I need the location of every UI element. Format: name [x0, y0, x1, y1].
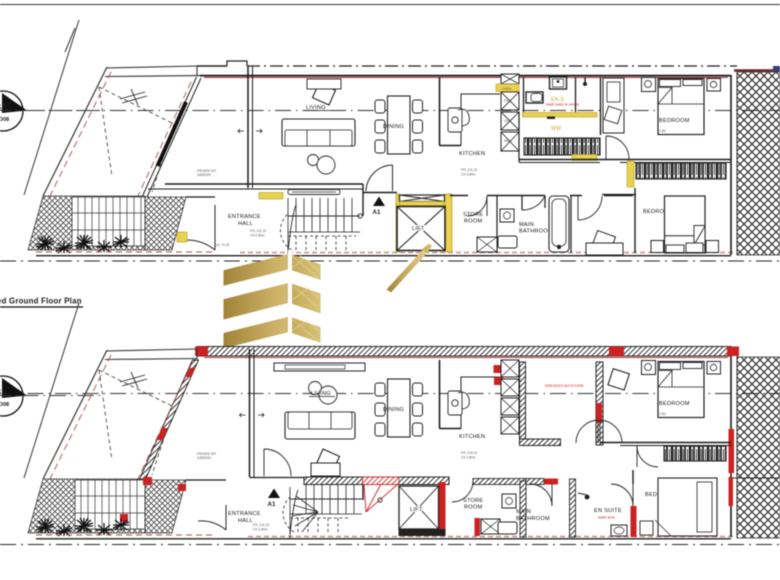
svg-text:OVEN: OVEN	[502, 87, 512, 91]
svg-text:CH 2.80m: CH 2.80m	[461, 456, 476, 460]
svg-text:KITCHEN: KITCHEN	[459, 434, 485, 440]
svg-text:MAIN: MAIN	[516, 509, 531, 515]
svg-text:BATHROOM: BATHROOM	[516, 516, 550, 522]
svg-text:FR: FR	[504, 99, 509, 103]
svg-text:LIFT: LIFT	[410, 507, 423, 513]
svg-text:CH 2.80m: CH 2.80m	[461, 173, 476, 177]
svg-text:FFL 104.10: FFL 104.10	[461, 451, 477, 455]
svg-text:ed Ground Floor Plan: ed Ground Floor Plan	[0, 297, 82, 306]
svg-text:DRESS/STUDY/STORE: DRESS/STUDY/STORE	[545, 384, 584, 388]
svg-text:DINING: DINING	[383, 124, 404, 130]
svg-text:wash basin in alcove: wash basin in alcove	[546, 103, 579, 107]
svg-text:1 Bd: 1 Bd	[659, 129, 666, 133]
svg-text:EN SUITE: EN SUITE	[594, 508, 622, 514]
svg-text:DINING: DINING	[383, 407, 404, 413]
svg-text:FFL 101.10: FFL 101.10	[461, 168, 477, 172]
svg-text:LIFT: LIFT	[412, 226, 425, 232]
svg-text:LVL +0.15: LVL +0.15	[215, 243, 229, 247]
svg-text:CH 2.80m: CH 2.80m	[253, 528, 268, 532]
svg-text:BEDROOM: BEDROOM	[659, 118, 690, 124]
svg-text:HALL: HALL	[238, 518, 253, 524]
svg-text:LIVING: LIVING	[306, 105, 326, 111]
svg-text:ROOM: ROOM	[464, 219, 482, 225]
svg-text:A1: A1	[268, 501, 276, 508]
svg-text:FFL 101.10: FFL 101.10	[253, 523, 269, 527]
svg-text:KITCHEN: KITCHEN	[459, 151, 485, 157]
svg-text:STORE: STORE	[463, 498, 483, 504]
svg-text:FFL 101.10: FFL 101.10	[250, 229, 266, 233]
svg-text:ROOM: ROOM	[464, 505, 482, 511]
svg-text:WW: WW	[551, 126, 561, 132]
svg-text:ENTRANCE: ENTRANCE	[228, 214, 261, 220]
svg-text:A1: A1	[373, 209, 381, 216]
svg-text:UD08: UD08	[0, 117, 9, 123]
svg-text:MAIN: MAIN	[519, 222, 534, 228]
svg-text:GARDEN: GARDEN	[197, 456, 211, 460]
svg-text:WM: WM	[504, 139, 510, 143]
svg-text:BEDROOM: BEDROOM	[659, 401, 690, 407]
svg-text:GARDEN: GARDEN	[197, 173, 211, 177]
svg-text:UD08: UD08	[0, 402, 9, 408]
svg-text:LIVING: LIVING	[311, 391, 331, 397]
svg-text:CH 2.80m: CH 2.80m	[250, 234, 265, 238]
svg-text:1 Bd: 1 Bd	[659, 412, 666, 416]
svg-text:BATHROOM: BATHROOM	[519, 229, 553, 235]
svg-text:wash area: wash area	[598, 516, 615, 520]
svg-text:HALL: HALL	[238, 221, 253, 227]
svg-text:ENTRANCE: ENTRANCE	[228, 511, 261, 517]
